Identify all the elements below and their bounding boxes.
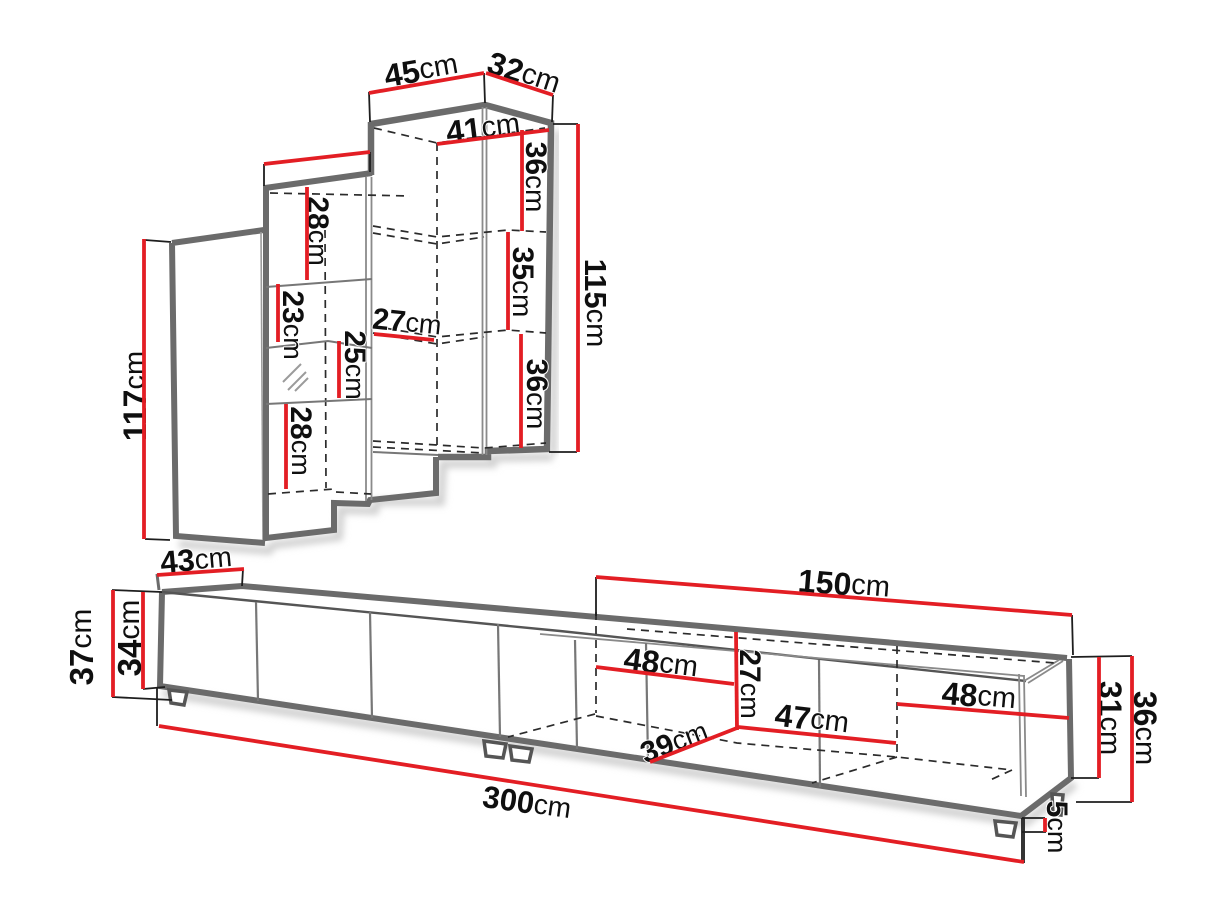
svg-text:35cm: 35cm (507, 247, 540, 318)
svg-text:36cm: 36cm (521, 359, 554, 430)
svg-text:37cm: 37cm (63, 609, 100, 686)
svg-text:25cm: 25cm (339, 330, 372, 399)
svg-text:117cm: 117cm (117, 351, 153, 441)
svg-text:36cm: 36cm (520, 142, 553, 213)
svg-text:115cm: 115cm (579, 259, 614, 348)
svg-text:28cm: 28cm (285, 406, 318, 475)
svg-text:23cm: 23cm (277, 290, 310, 359)
